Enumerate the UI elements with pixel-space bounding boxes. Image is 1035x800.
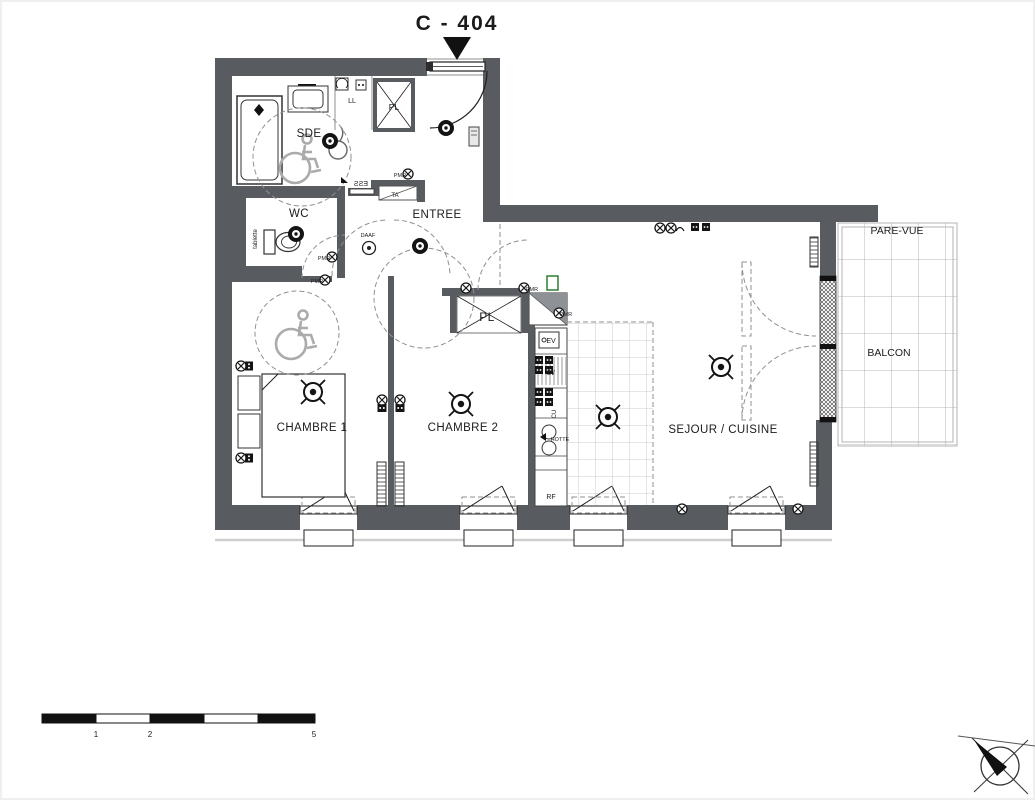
socket-icon [545, 356, 553, 364]
socket-icon [535, 398, 543, 406]
sde-sliding-door [350, 189, 374, 194]
socket-switch-icon [236, 361, 253, 371]
window-sejour [728, 486, 785, 546]
threshold-marker [341, 177, 348, 183]
spotlight-icon [412, 238, 428, 254]
socket-icon [691, 223, 699, 231]
label-tablette: tablette [253, 228, 259, 248]
room-label-sde: SDE [297, 128, 322, 140]
room-label-chambre2: CHAMBRE 2 [428, 422, 499, 434]
label-placard-sde: PL [389, 102, 400, 112]
placard-top-bar [442, 288, 530, 296]
switch-icon [677, 504, 687, 514]
scale-label-5: 5 [312, 730, 317, 739]
socket-switch-icon [236, 453, 253, 463]
balcony-door-swing-lower [742, 346, 816, 420]
balcony-door-swing-upper [742, 262, 816, 336]
room-label-sejour: SEJOUR / CUISINE [668, 424, 777, 436]
entrance-arrow-icon [443, 37, 471, 60]
floor-plan-drawing: SDE WC ENTREE CHAMBRE 1 CHAMBRE 2 SEJOUR… [0, 0, 1035, 800]
label-lave-vaisselle: LV [547, 370, 555, 377]
chambre-divider-wall [388, 276, 394, 505]
vmc-icon [336, 78, 366, 90]
room-label-chambre1: CHAMBRE 1 [277, 422, 348, 434]
scale-label-2: 2 [148, 730, 153, 739]
threshold-stub-right [417, 180, 425, 202]
videophone [469, 127, 479, 146]
radiator [810, 237, 818, 267]
nightstand [238, 414, 260, 448]
door-hinge [426, 62, 433, 71]
radiator [810, 442, 818, 486]
spotlight-icon [438, 120, 454, 136]
room-label-entree: ENTREE [412, 209, 461, 221]
sejour-top-wall [500, 205, 878, 222]
socket-switch-icon [395, 395, 405, 412]
switch-icon [655, 223, 665, 233]
switch-icon [793, 504, 803, 514]
label-hotte: HOTTE [551, 437, 570, 443]
switch-icon [461, 283, 471, 293]
ceiling-light-icon [449, 392, 473, 416]
scale-bar: 1 2 5 [42, 714, 317, 739]
north-arrow-icon [974, 740, 1007, 776]
label-evier: EV [546, 338, 556, 345]
placard-left-stub [450, 296, 457, 333]
shower-tray [237, 96, 282, 184]
wc-right-wall [337, 198, 345, 278]
hall-door-swing [478, 240, 528, 290]
sde-wc-divider [232, 186, 345, 198]
room-label-balcon: BALCON [867, 347, 910, 359]
balcony-door-leaf-upper [742, 262, 751, 336]
entrance-door [426, 59, 487, 128]
label-placard-entree: PL [479, 310, 494, 324]
socket-icon [545, 388, 553, 396]
label-refrigerateur: RF [546, 494, 555, 501]
north-compass [958, 736, 1035, 794]
gas-valve-marker [547, 276, 558, 290]
label-lave-linge: LL [348, 98, 356, 105]
top-wall [215, 58, 427, 76]
label-pmr: PMR [526, 287, 538, 293]
title-block: C - 404 [416, 12, 499, 60]
unit-title: C - 404 [416, 12, 499, 35]
floor-plan-page: SDE WC ENTREE CHAMBRE 1 CHAMBRE 2 SEJOUR… [0, 0, 1035, 800]
spotlight-icon [322, 133, 338, 149]
tv-outlet-icon [676, 228, 684, 232]
label-pmr: PMR [394, 173, 406, 179]
pmr-turning-circle-chambre1 [255, 291, 339, 375]
entree-detail [341, 127, 500, 288]
socket-icon [535, 356, 543, 364]
room-label-wc: WC [289, 208, 309, 220]
socket-icon [702, 223, 710, 231]
wheelchair-icon-sde [280, 135, 321, 184]
wheelchair-icon-chambre1 [276, 311, 317, 360]
label-pmr: PMR [311, 279, 323, 285]
label-pmr: PMR [560, 312, 572, 318]
ceiling-light-icon [301, 380, 325, 404]
label-tableau-abonne: TA [391, 193, 398, 199]
nightstand [238, 376, 260, 410]
threshold-bar [371, 180, 423, 186]
radiator [395, 462, 404, 506]
washbasin [288, 84, 328, 112]
label-daaf: DAAF [361, 233, 376, 239]
socket-icon [545, 398, 553, 406]
chambre1-furniture [238, 291, 345, 497]
left-wall [215, 58, 232, 530]
switch-icon [666, 223, 676, 233]
ceiling-light-icon [596, 405, 620, 429]
label-seuil: ESS [354, 181, 368, 188]
spotlight-icon [288, 226, 304, 242]
window-chambre2 [460, 486, 517, 546]
balcony [742, 223, 957, 446]
radiator [377, 462, 386, 506]
socket-icon [535, 388, 543, 396]
entrance-door-swing [430, 71, 487, 128]
balcony-tiling [838, 223, 957, 446]
label-pmr: PMR [318, 256, 330, 262]
label-pare-vue: PARE-VUE [871, 225, 924, 237]
socket-switch-icon [377, 395, 387, 412]
balcony-door-jamb [820, 222, 836, 276]
scale-label-1: 1 [94, 730, 99, 739]
label-cuisson: CU [552, 410, 558, 419]
balcony-door-leaf-lower [742, 346, 751, 420]
ceiling-light-icon [709, 355, 733, 379]
kitchen-units [535, 328, 567, 506]
socket-icon [535, 366, 543, 374]
balcony-glass-door [820, 276, 836, 422]
